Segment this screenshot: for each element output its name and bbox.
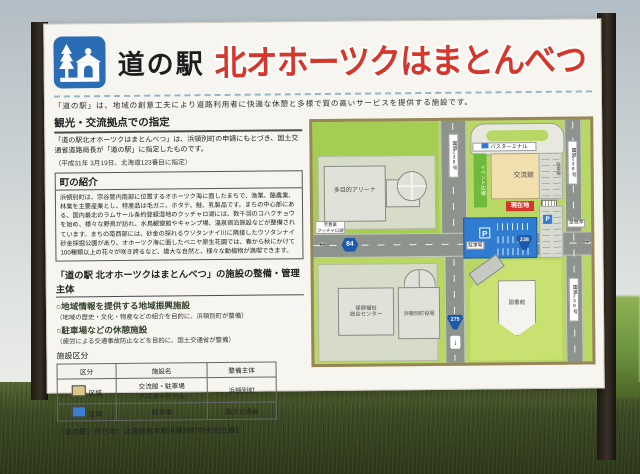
route-238-road-label: 国道238号 <box>569 278 579 322</box>
arena-label: 多目的アリーナ <box>324 187 386 195</box>
library-label: 図書館 <box>498 300 536 307</box>
town-hall-label: 浜頓別町役場 <box>396 311 442 318</box>
michinoeki-pictogram-icon <box>53 36 105 88</box>
west-arrow: ← <box>317 238 327 249</box>
beige-zone-swatch <box>72 385 86 396</box>
parking-icon: P <box>543 215 552 224</box>
bus-terminal-label: バスターミナル <box>472 142 536 152</box>
tagline-text: 「道の駅」は、地域の創意工夫により道路利用者に快適な休憩と多様で質の高いサービス… <box>54 95 592 111</box>
parking-icon: P <box>479 227 490 238</box>
to-esashi-label: 至枝幸 <box>567 219 585 227</box>
parking-label: 駐車場 <box>466 241 484 249</box>
designation-note: （平成31年 3月19日、北海道123番目に指定） <box>55 155 303 167</box>
designation-body: 「道の駅北オホーツクはまとんべつ」は、浜頓別町の申請にもとづき、国土交通省道路局… <box>54 134 302 156</box>
route-238-road-label: 国道238号 <box>448 134 458 178</box>
town-intro-box: 町の紹介 浜頓別町は、宗谷管内南部に位置するオホーツク海に面したまちで、漁業、酪… <box>55 170 304 262</box>
management-item: ○地域情報を提供する地域振興施設 （地域の歴史・文化・物産などの紹介を目的に、浜… <box>56 298 304 321</box>
management-item: ○駐車場などの休憩施設 （疲労による交通事故防止などを目的に、国土交通省が整備） <box>56 322 304 345</box>
management-heading: 「道の駅 北オホーツクはまとんべつ」の施設の整備・管理主体 <box>56 265 304 297</box>
manager-cell: 国土交通省 <box>207 402 276 420</box>
parking-stalls <box>497 223 531 230</box>
designation-heading: 観光・交流拠点での指定 <box>54 113 302 133</box>
zone-label: 区域 <box>89 411 102 418</box>
station-type-label: 道の駅 <box>117 42 204 82</box>
photo-background: 道の駅 北オホーツクはまとんべつ 「道の駅」は、地域の創意工夫により道路利用者に… <box>0 0 640 474</box>
station-name-title: 北オホーツクはまとんべつ <box>214 33 586 86</box>
col-manager: 整備主体 <box>207 362 276 378</box>
facility-cell: 駐車場 <box>116 403 207 421</box>
east-arrow: → <box>580 235 590 246</box>
health-center-label: 保健福祉 総合センター <box>338 305 394 319</box>
parking-label: 駐車場 <box>556 162 562 176</box>
zone-label: 区域 <box>89 390 102 397</box>
south-arrow: ↓ <box>450 336 460 349</box>
table-row: 区域 駐車場 国土交通省 <box>57 402 276 421</box>
area-map: 多目的アリーナ バスターミナル イベント広場 交流館 <box>309 116 595 367</box>
manager-cell: 浜頓別町 <box>207 377 276 403</box>
management-item-note: （地域の歴史・文化・物産などの紹介を目的に、浜頓別町が整備） <box>56 310 304 321</box>
to-toyotomi-label: 至豊富 クッチャロ湖 <box>315 221 345 234</box>
route-238-road-label: 国道238号 <box>567 141 577 185</box>
event-plaza: イベント広場 <box>474 153 488 207</box>
col-zone: 区分 <box>57 364 116 380</box>
parking-stalls <box>553 210 561 254</box>
zone-cell: 区域 <box>57 404 116 422</box>
current-location-marker: 現在地 <box>506 201 534 211</box>
roadside-station-sign-board: 道の駅 北オホーツクはまとんべつ 「道の駅」は、地域の創意工夫により道路利用者に… <box>43 18 605 393</box>
bus-terminal-text: バスターミナル <box>490 144 527 150</box>
col-facility: 施設名 <box>116 363 207 379</box>
dome-divider <box>419 270 420 287</box>
management-item-note: （疲労による交通事故防止などを目的に、国土交通省が整備） <box>56 334 304 345</box>
sign-header: 道の駅 北オホーツクはまとんべつ <box>53 26 592 93</box>
bus-loop-island <box>486 130 548 142</box>
town-intro-body: 浜頓別町は、宗谷管内南部に位置するオホーツク海に面したまちで、漁業、酪農業、林業… <box>56 188 303 261</box>
zone-cell: 区域 <box>57 379 116 405</box>
facility-cell: 交流館・駐車場 バスターミナル <box>116 378 207 404</box>
bus-icon <box>481 143 488 148</box>
zoning-table: 区分 施設名 整備主体 区域 交流館・駐車場 バスターミナル 浜頓別町 区域 駐… <box>57 362 278 422</box>
zoning-table-caption: 施設区分 <box>56 348 304 361</box>
table-row: 区域 交流館・駐車場 バスターミナル 浜頓別町 <box>57 377 276 404</box>
round-structure-divider <box>398 185 426 187</box>
blue-zone-swatch <box>72 406 86 417</box>
info-column: 観光・交流拠点での指定 「道の駅北オホーツクはまとんべつ」は、浜頓別町の申請にも… <box>54 113 305 437</box>
parking-stalls <box>542 156 550 196</box>
